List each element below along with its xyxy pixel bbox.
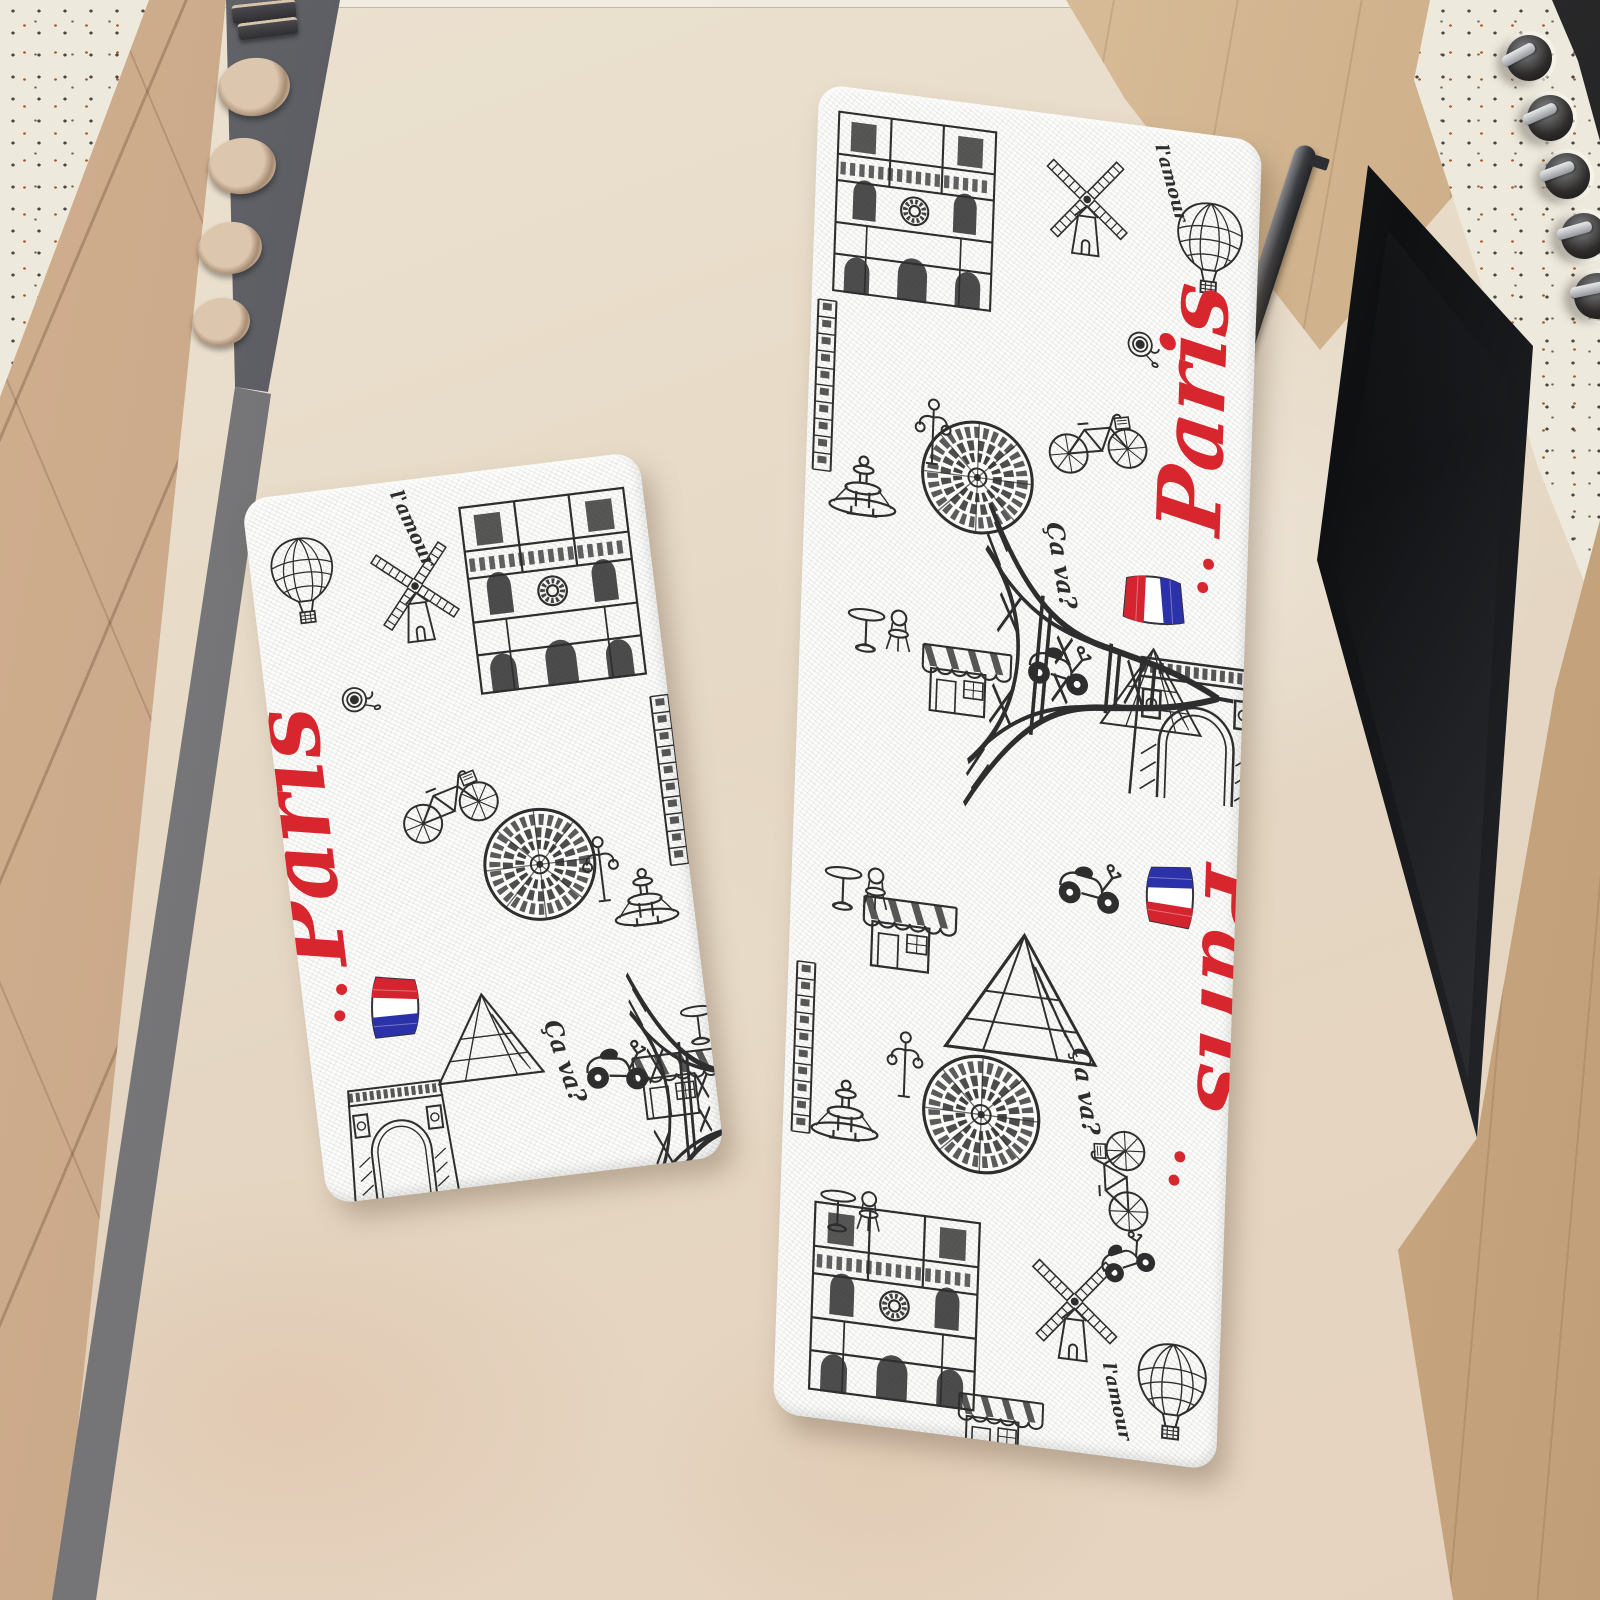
kitchen-mat-runner: l'amour Paris Ça va? Paris bbox=[773, 83, 1263, 1471]
paris-script: Paris bbox=[1137, 277, 1249, 544]
red-dot bbox=[1168, 1174, 1179, 1186]
cava-text: Ça va? bbox=[1040, 521, 1084, 611]
cava-text: Ça va? bbox=[538, 1016, 594, 1108]
lamour-text: l'amour bbox=[385, 487, 440, 572]
red-dot bbox=[335, 983, 347, 995]
red-dot bbox=[1174, 1151, 1185, 1163]
kitchen-mat-small: l'amour Paris Ça va? bbox=[241, 451, 725, 1204]
red-dot bbox=[1203, 558, 1214, 570]
lamour-text: l'amour bbox=[1098, 1361, 1136, 1443]
cava-text: Ça va? bbox=[1066, 1047, 1107, 1136]
runner-mat-print: l'amour Paris Ça va? Paris bbox=[773, 83, 1263, 1471]
lamour-text: l'amour bbox=[1150, 143, 1192, 225]
left-mat-print: l'amour Paris Ça va? bbox=[241, 451, 725, 1204]
red-dot bbox=[1197, 581, 1208, 593]
red-dot bbox=[334, 1010, 346, 1022]
kitchen-scene: l'amour Paris Ça va? l bbox=[0, 0, 1600, 1600]
